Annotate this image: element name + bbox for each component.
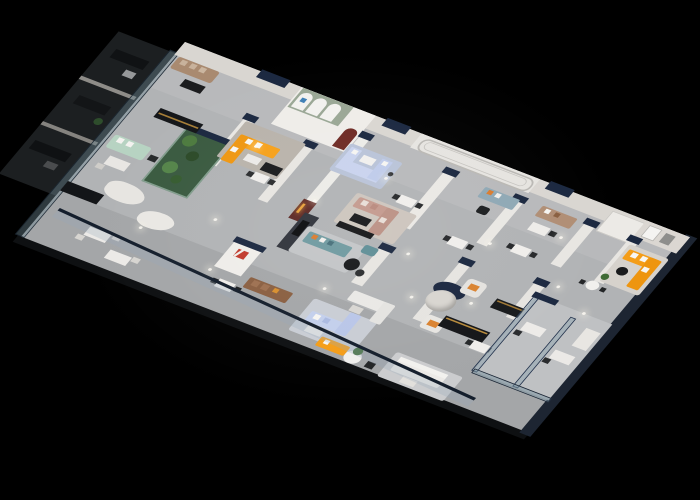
render-stage [0, 0, 700, 500]
floor-plan [20, 42, 690, 433]
